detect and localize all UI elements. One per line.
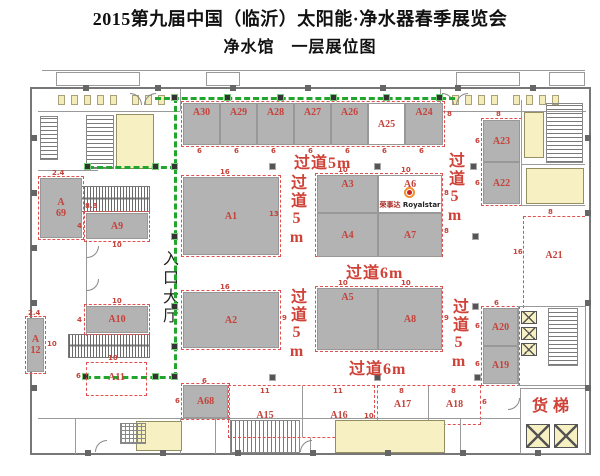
entrance-door-arc — [87, 246, 99, 258]
dim: 6 — [202, 377, 207, 385]
aisle-label: 过道5m — [446, 152, 462, 226]
column — [224, 94, 231, 101]
staircase — [546, 103, 583, 163]
partition — [75, 418, 76, 454]
partition — [521, 205, 585, 206]
page-title: 2015第九届中国（临沂）太阳能·净水器春季展览会 — [0, 5, 600, 31]
page-subtitle: 净水馆 一层展位图 — [0, 33, 600, 57]
dim: 6 — [197, 147, 202, 155]
dim: 6 — [76, 372, 81, 380]
booth-a7: A7 — [378, 213, 442, 257]
staircase — [120, 423, 146, 444]
booth-a9: A9 — [86, 213, 148, 239]
roof-room — [549, 72, 585, 86]
dim: 9 — [444, 314, 449, 322]
dim: 11 — [333, 387, 343, 395]
dim: 8 — [447, 110, 452, 118]
wall-right — [589, 87, 591, 455]
booth-a21 — [523, 216, 585, 308]
dim: 8 — [399, 387, 404, 395]
outer-top-line — [42, 70, 585, 71]
toilet-fixture — [478, 95, 485, 105]
aisle-label: 过道5m — [288, 288, 304, 362]
column — [171, 94, 178, 101]
dim: 16 — [220, 283, 230, 291]
partition — [38, 111, 180, 112]
dim: 6 — [175, 397, 180, 405]
dim: 16 — [513, 248, 523, 256]
partition — [460, 418, 461, 454]
freight-elevator-label: 货梯 — [522, 392, 584, 416]
toilet-fixture — [526, 95, 533, 105]
column — [171, 303, 178, 310]
booth-a5: A5 — [317, 288, 378, 350]
door-arc — [508, 398, 520, 410]
booth-a26: A26 — [331, 103, 368, 145]
column — [277, 94, 284, 101]
booth-a69: A69 — [40, 178, 82, 238]
visitor-path — [88, 166, 176, 169]
booth-a68: A68 — [183, 385, 228, 418]
dim: 6 — [234, 147, 239, 155]
column — [472, 233, 479, 240]
dim: 6 — [475, 137, 480, 145]
column — [436, 94, 443, 101]
dim: 10 — [112, 241, 122, 249]
dim: 8 — [548, 208, 553, 216]
column — [380, 85, 386, 91]
elevator-box — [521, 343, 537, 356]
booth-a18-label: A18 — [428, 399, 481, 410]
column — [171, 163, 178, 170]
booth-a4: A4 — [317, 213, 378, 257]
freight-elevator-box — [554, 424, 578, 448]
column — [31, 190, 37, 196]
aisle-label: 过道6m — [349, 355, 406, 379]
aisle-label: 过道5m — [288, 174, 304, 248]
column — [31, 300, 37, 306]
dim: 2.4 — [28, 309, 40, 317]
booth-a28: A28 — [257, 103, 294, 145]
column — [474, 374, 481, 381]
dim: 4 — [77, 316, 82, 324]
entrance-door-arc — [87, 279, 99, 291]
dim: 11 — [260, 387, 270, 395]
booth-a3: A3 — [317, 175, 378, 213]
toilet-fixture — [539, 95, 546, 105]
booth-a19: A19 — [483, 346, 518, 384]
partition — [521, 164, 585, 165]
elevator-box — [521, 311, 537, 324]
booth-a24: A24 — [405, 103, 443, 145]
column — [535, 450, 541, 456]
booth-a27: A27 — [294, 103, 331, 145]
booth-a23: A23 — [483, 120, 520, 162]
stairwell-room — [116, 114, 154, 169]
column — [385, 450, 391, 456]
column — [230, 85, 236, 91]
booth-a30: A30 — [183, 103, 220, 145]
column — [383, 94, 390, 101]
toilet-fixture — [71, 95, 78, 105]
booth-a2: A2 — [183, 292, 279, 348]
column — [84, 163, 91, 170]
staircase — [548, 308, 578, 366]
column — [585, 300, 591, 306]
toilet-fixture — [97, 95, 104, 105]
column — [31, 245, 37, 251]
column — [470, 163, 477, 170]
column — [152, 373, 159, 380]
booth-a1: A1 — [183, 177, 279, 255]
column — [269, 374, 276, 381]
staircase — [40, 116, 58, 160]
booth-a10: A10 — [86, 306, 148, 333]
partition — [38, 418, 520, 419]
aisle-label: 过道5m — [450, 298, 466, 372]
dim: 10 — [108, 354, 118, 362]
roof-room — [56, 72, 140, 86]
column — [305, 85, 311, 91]
column — [31, 385, 37, 391]
column — [455, 85, 461, 91]
royalstar-logo-dot — [407, 190, 412, 195]
toilet-fixture — [84, 95, 91, 105]
dim: 10 — [112, 297, 122, 305]
dim: 16 — [220, 168, 230, 176]
dim: 10 — [401, 166, 411, 174]
staircase — [86, 115, 114, 169]
column — [374, 163, 381, 170]
dim: 6 — [475, 179, 480, 187]
aisle-label: 过道5m — [294, 149, 351, 173]
column — [83, 85, 89, 91]
column — [310, 450, 316, 456]
column — [235, 450, 241, 456]
dim: 6 — [494, 299, 499, 307]
column — [460, 450, 466, 456]
booth-a20: A20 — [483, 308, 518, 346]
dim: 8.8 — [85, 202, 97, 210]
roof-room — [456, 72, 520, 86]
dim: 8 — [444, 227, 449, 235]
booth-a11-label: A11 — [86, 372, 147, 383]
column — [330, 94, 337, 101]
column — [152, 163, 159, 170]
floor-plan-page: 2015第九届中国（临沂）太阳能·净水器春季展览会 净水馆 一层展位图 入口大厅 — [0, 0, 600, 476]
visitor-path — [155, 97, 455, 100]
wall-left — [30, 87, 32, 455]
dim: 6 — [382, 147, 387, 155]
dim: 6 — [271, 147, 276, 155]
dim: 6 — [419, 147, 424, 155]
column — [160, 450, 166, 456]
dim: 8 — [496, 110, 501, 118]
roof-room — [206, 72, 240, 86]
dim: 6 — [475, 360, 480, 368]
door-arc — [95, 440, 107, 452]
toilet-fixture — [58, 95, 65, 105]
column — [585, 135, 591, 141]
door-arc — [130, 93, 142, 105]
column — [472, 303, 479, 310]
booth-a17-label: A17 — [377, 399, 428, 410]
column — [155, 85, 161, 91]
utility-room — [526, 168, 584, 204]
dim: 4 — [77, 222, 82, 230]
elevator-box — [521, 327, 537, 340]
booth-a25: A25 — [368, 103, 405, 145]
partition — [521, 100, 522, 205]
column — [85, 450, 91, 456]
column — [171, 233, 178, 240]
dim: 10 — [47, 340, 57, 348]
booth-a22: A22 — [483, 162, 520, 204]
column — [31, 135, 37, 141]
royalstar-brand: 荣事达 Royalstar — [379, 200, 441, 210]
column — [530, 85, 536, 91]
partition — [38, 170, 98, 171]
partition — [215, 418, 216, 454]
toilet-fixture — [110, 95, 117, 105]
utility-room — [335, 420, 445, 453]
dim: 9 — [282, 314, 287, 322]
dim: 6 — [482, 398, 487, 406]
staircase — [230, 420, 300, 453]
booth-a12: A12 — [27, 318, 44, 372]
stairwell-room — [524, 112, 544, 158]
column — [269, 163, 276, 170]
aisle-label: 过道6m — [346, 259, 403, 283]
toilet-fixture — [491, 95, 498, 105]
freight-elevator-box — [526, 424, 550, 448]
dim: 13 — [269, 210, 279, 218]
booth-a8: A8 — [378, 288, 442, 350]
dim: 8 — [451, 387, 456, 395]
column — [171, 343, 178, 350]
dim: 2.4 — [52, 169, 64, 177]
column — [171, 373, 178, 380]
booth-a29: A29 — [220, 103, 257, 145]
toilet-fixture — [513, 95, 520, 105]
column — [585, 385, 591, 391]
column — [585, 210, 591, 216]
dim: 6 — [475, 322, 480, 330]
booth-a21-label: A21 — [523, 250, 585, 261]
